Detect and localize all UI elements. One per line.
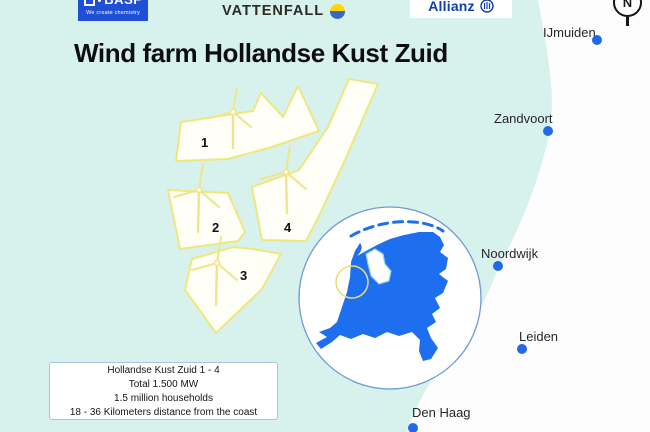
city-label-zandvoort: Zandvoort <box>494 111 553 126</box>
compass-stem <box>626 17 629 26</box>
zone-4-number: 4 <box>284 220 291 235</box>
info-line-distance: 18 - 36 Kilometers distance from the coa… <box>70 406 257 419</box>
inset-map <box>299 207 481 389</box>
basf-tagline: We create chemistry <box>86 9 140 17</box>
city-label-ijmuiden: IJmuiden <box>543 25 596 40</box>
windfarm-zone-3-shape <box>185 247 281 333</box>
info-line-capacity: Total 1.500 MW <box>129 378 198 391</box>
zone-2-number: 2 <box>212 220 219 235</box>
vattenfall-logo-text: VATTENFALL <box>222 3 324 19</box>
allianz-eagle-icon <box>480 0 494 13</box>
allianz-logo: Allianz <box>410 0 512 18</box>
info-line-households: 1.5 million households <box>114 392 213 405</box>
allianz-logo-text: Allianz <box>428 0 475 14</box>
infographic-canvas: BASF We create chemistry VATTENFALL Alli… <box>0 0 650 432</box>
basf-mark-dot-icon <box>98 0 101 2</box>
vattenfall-circle-top <box>330 4 345 12</box>
vattenfall-circle-bottom <box>330 11 345 19</box>
basf-logo-text: BASF <box>104 0 141 8</box>
windfarm-info-box: Hollandse Kust Zuid 1 - 4 Total 1.500 MW… <box>49 362 278 420</box>
info-line-name: Hollandse Kust Zuid 1 - 4 <box>107 364 219 377</box>
city-label-den-haag: Den Haag <box>412 405 471 420</box>
windfarm-zone-2-shape <box>168 190 245 249</box>
compass-north-label: N <box>623 0 632 10</box>
zone-3-number: 3 <box>240 268 247 283</box>
city-dot-ijmuiden <box>592 35 602 45</box>
vattenfall-circle-icon <box>330 4 345 19</box>
zone-1-number: 1 <box>201 135 208 150</box>
city-label-noordwijk: Noordwijk <box>481 246 538 261</box>
city-dot-zandvoort <box>543 126 553 136</box>
city-dot-leiden <box>517 344 527 354</box>
basf-logo: BASF We create chemistry <box>78 0 148 21</box>
page-title: Wind farm Hollandse Kust Zuid <box>74 38 448 69</box>
city-dot-noordwijk <box>493 261 503 271</box>
city-label-leiden: Leiden <box>519 329 558 344</box>
city-dot-den-haag <box>408 423 418 432</box>
vattenfall-logo: VATTENFALL <box>222 3 345 19</box>
basf-mark-square-icon <box>84 0 95 6</box>
